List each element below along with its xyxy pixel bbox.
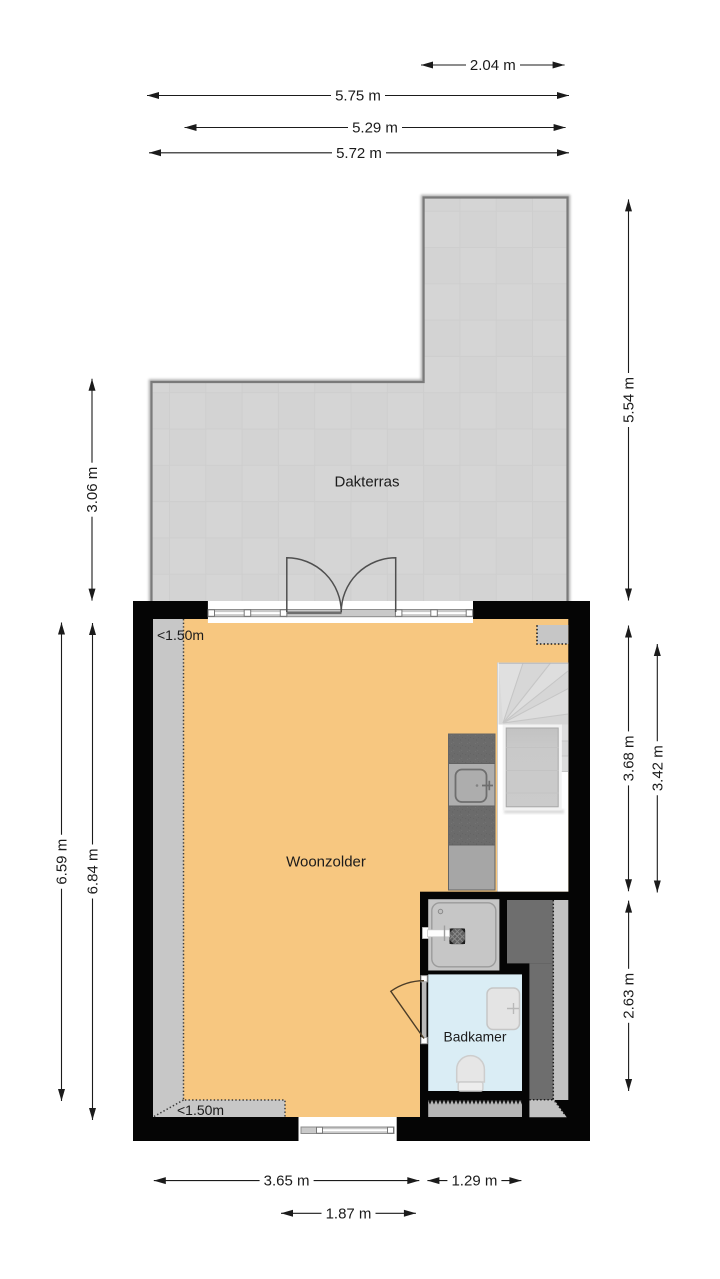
- svg-text:<1.50m: <1.50m: [157, 627, 204, 643]
- svg-text:5.75 m: 5.75 m: [335, 88, 381, 105]
- svg-text:2.63 m: 2.63 m: [621, 973, 638, 1019]
- svg-text:Badkamer: Badkamer: [444, 1030, 507, 1045]
- svg-text:5.54 m: 5.54 m: [621, 377, 638, 423]
- svg-text:3.06 m: 3.06 m: [84, 467, 101, 513]
- svg-text:3.65 m: 3.65 m: [264, 1173, 310, 1190]
- svg-text:<1.50m: <1.50m: [177, 1102, 224, 1118]
- svg-text:5.29 m: 5.29 m: [352, 120, 398, 137]
- svg-text:5.72 m: 5.72 m: [336, 145, 382, 162]
- svg-text:Woonzolder: Woonzolder: [286, 854, 366, 871]
- svg-text:2.04 m: 2.04 m: [470, 57, 516, 74]
- svg-text:3.42 m: 3.42 m: [649, 745, 666, 791]
- svg-text:6.59 m: 6.59 m: [54, 839, 71, 885]
- svg-text:1.29 m: 1.29 m: [451, 1173, 497, 1190]
- svg-text:6.84 m: 6.84 m: [85, 849, 102, 895]
- svg-text:Dakterras: Dakterras: [334, 474, 399, 491]
- svg-text:3.68 m: 3.68 m: [621, 735, 638, 781]
- svg-text:1.87 m: 1.87 m: [326, 1205, 372, 1222]
